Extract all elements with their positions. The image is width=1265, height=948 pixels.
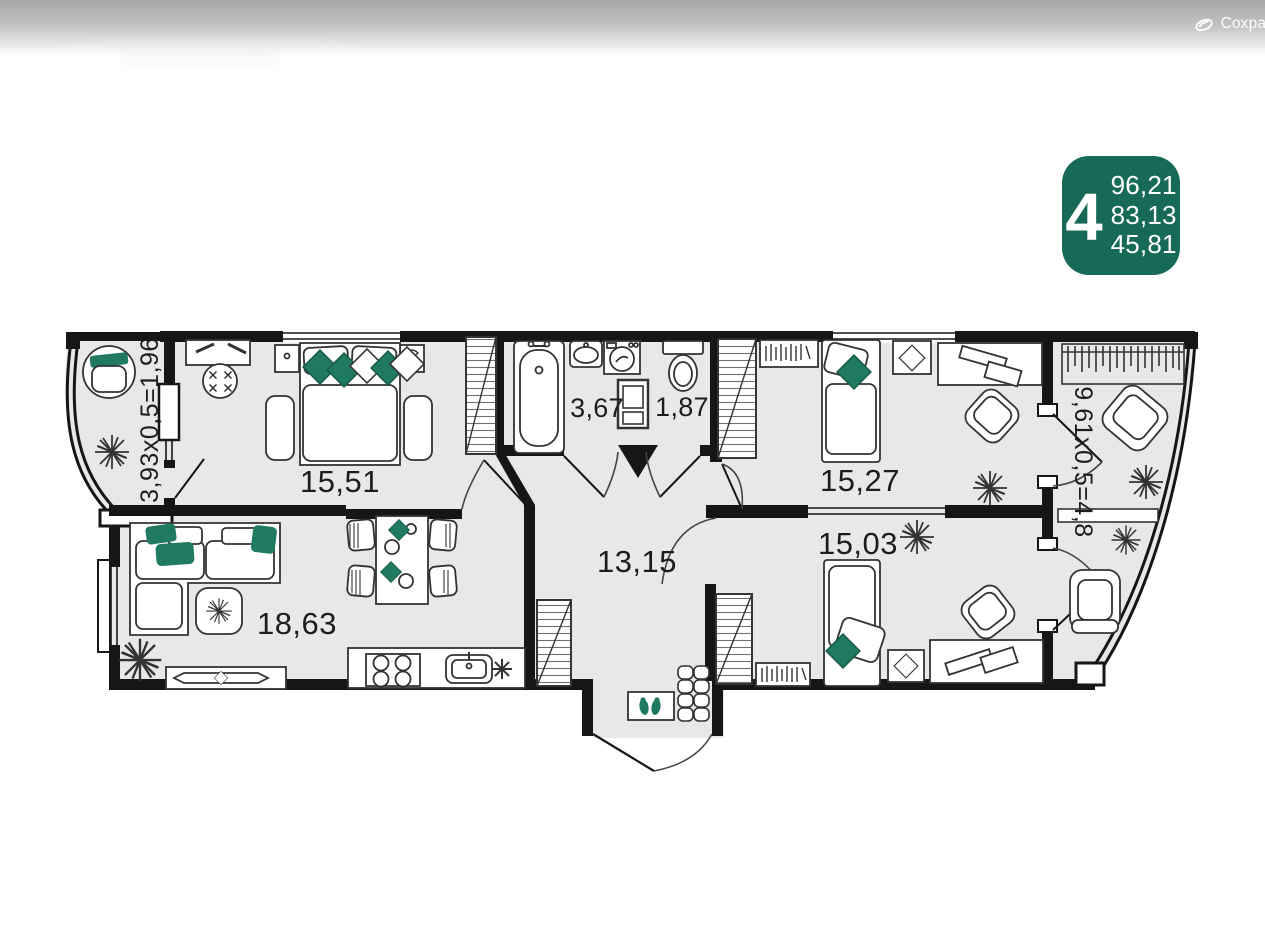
wardrobe-icon [716, 594, 752, 684]
window-top-bedroom-1 [283, 329, 400, 343]
wardrobe-icon [537, 600, 571, 686]
label-balcony-left: 3,93x0,5=1,96 [136, 337, 164, 503]
wardrobe-icon [466, 337, 496, 454]
floor-plan: 15,51 3,67 1,87 15,27 15,03 13,15 18,63 … [0, 0, 1265, 948]
entrance-door [593, 734, 712, 771]
label-bedroom-1: 15,51 [300, 464, 380, 499]
label-living-kitchen: 18,63 [257, 606, 337, 641]
label-bathroom: 3,67 [570, 393, 624, 423]
label-balcony-right: 9,61x0,5=4,8 [1069, 386, 1097, 537]
balcony-right-sill [1076, 663, 1104, 685]
label-wc: 1,87 [655, 392, 709, 422]
label-bedroom-2: 15,27 [820, 463, 900, 498]
label-hallway: 13,15 [597, 544, 677, 579]
wardrobe-icon [718, 339, 756, 458]
doormat-icon [628, 692, 674, 720]
balcony-left-furniture [83, 346, 135, 398]
label-bedroom-3: 15,03 [818, 526, 898, 561]
fridge-snowflake-icon [492, 659, 512, 679]
